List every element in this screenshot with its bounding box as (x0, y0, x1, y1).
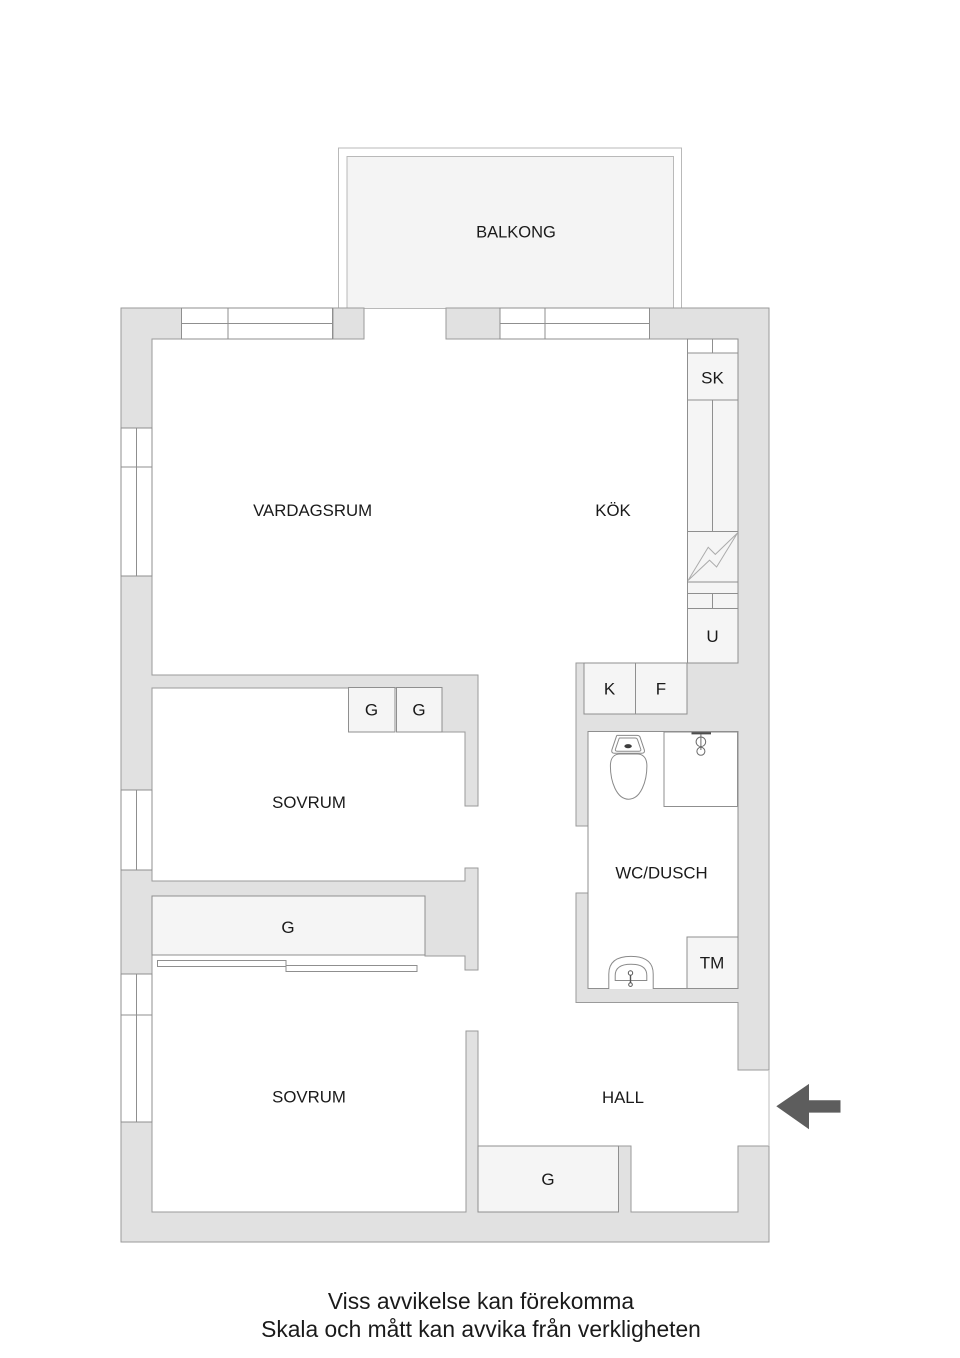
svg-text:U: U (706, 627, 718, 646)
svg-text:WC/DUSCH: WC/DUSCH (615, 864, 707, 883)
svg-text:K: K (604, 680, 616, 699)
svg-text:TM: TM (700, 954, 725, 973)
svg-text:HALL: HALL (602, 1088, 644, 1107)
svg-text:VARDAGSRUM: VARDAGSRUM (253, 501, 372, 520)
svg-text:G: G (365, 701, 378, 720)
svg-text:F: F (656, 680, 666, 699)
svg-text:SOVRUM: SOVRUM (272, 793, 346, 812)
svg-text:G: G (281, 918, 294, 937)
svg-text:G: G (412, 701, 425, 720)
svg-text:SK: SK (701, 369, 724, 388)
svg-text:G: G (541, 1170, 554, 1189)
svg-text:Viss avvikelse kan förekomma: Viss avvikelse kan förekomma (328, 1288, 635, 1314)
svg-text:BALKONG: BALKONG (476, 224, 556, 242)
svg-text:SOVRUM: SOVRUM (272, 1088, 346, 1107)
svg-text:Skala och mått kan avvika från: Skala och mått kan avvika från verklighe… (261, 1316, 701, 1342)
svg-text:KÖK: KÖK (595, 501, 630, 520)
